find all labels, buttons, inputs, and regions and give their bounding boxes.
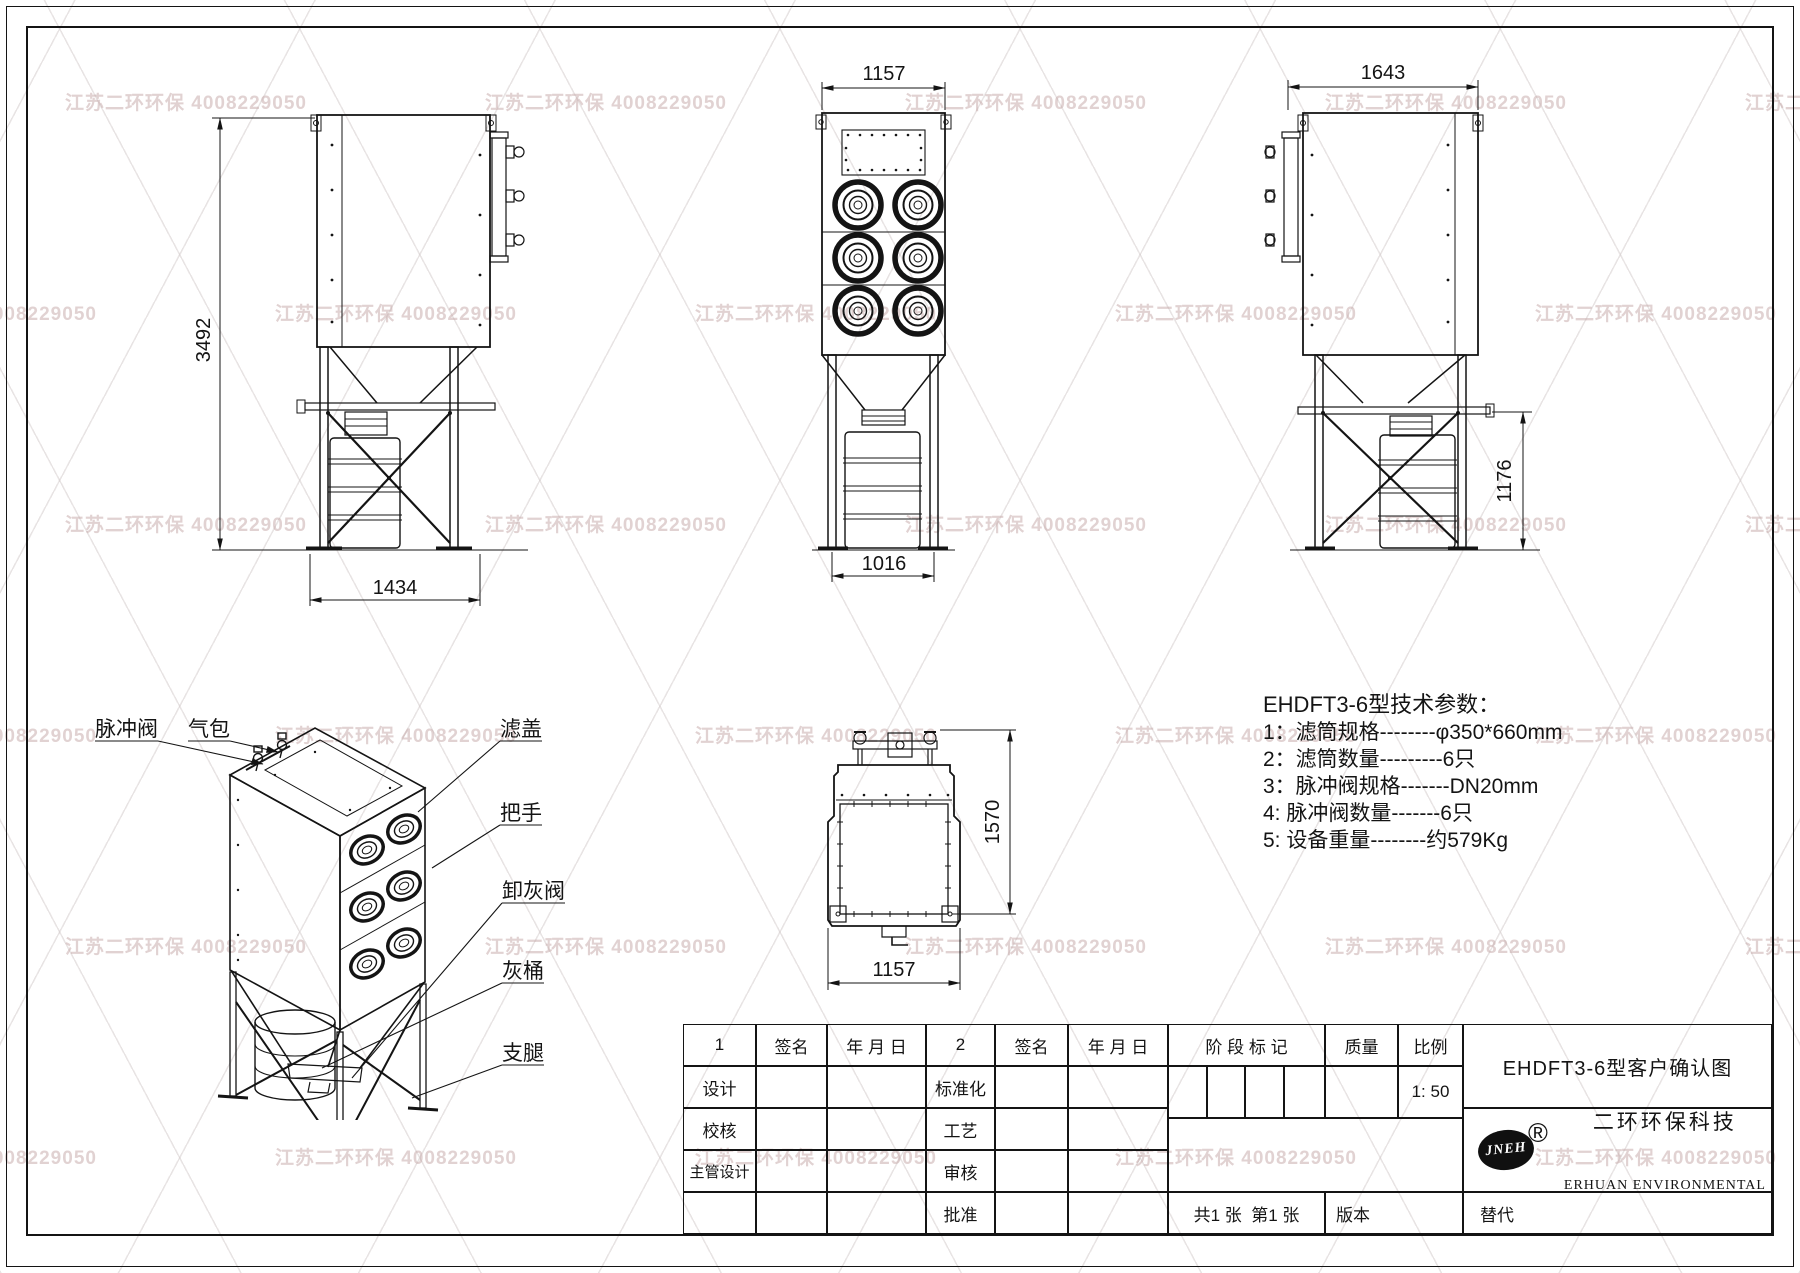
dim-right-height-lower: 1176 xyxy=(1494,459,1516,502)
filter-cartridges-icon xyxy=(835,182,941,334)
tech-params-title: EHDFT3-6型技术参数： xyxy=(1263,690,1623,719)
filter-cartridges-icon xyxy=(346,810,425,984)
tb-empty-cell xyxy=(1168,1118,1463,1192)
view-side-right: 1643 1176 xyxy=(1260,60,1560,620)
tech-params: EHDFT3-6型技术参数： 1：滤筒规格--------φ350*660mm … xyxy=(1263,690,1623,854)
tb-stage-subcell xyxy=(1284,1066,1325,1118)
tb-stage-subcell xyxy=(1168,1066,1207,1118)
tb-empty-cell xyxy=(827,1192,926,1234)
view-top: 1570 1157 xyxy=(780,700,1100,1000)
tb-empty-cell xyxy=(756,1192,827,1234)
tb-row-standard: 标准化 xyxy=(926,1066,995,1108)
dim-base-width: 1434 xyxy=(373,577,418,599)
view-front: 1157 1016 xyxy=(800,60,1000,620)
tb-empty-cell xyxy=(756,1108,827,1150)
label-support-leg: 支腿 xyxy=(502,1042,544,1065)
tb-empty-cell xyxy=(1068,1066,1168,1108)
company-name-en: ERHUAN ENVIRONMENTAL xyxy=(1564,1178,1766,1192)
dim-top-width: 1157 xyxy=(872,959,915,981)
dim-top-depth: 1570 xyxy=(982,800,1004,845)
tb-sheet-info: 共1 张 第1 张 xyxy=(1168,1192,1325,1234)
label-ash-bucket: 灰桶 xyxy=(502,960,544,983)
tech-param-item: 1：滤筒规格--------φ350*660mm xyxy=(1263,719,1623,746)
tb-empty-cell xyxy=(827,1150,926,1192)
tb-row-chief-design: 主管设计 xyxy=(683,1150,756,1192)
title-block: 1 签名 年 月 日 2 签名 年 月 日 阶 段 标 记 质量 比例 设计 标… xyxy=(683,1024,1772,1234)
tb-empty-cell xyxy=(827,1066,926,1108)
tb-scale-header: 比例 xyxy=(1398,1024,1463,1066)
tb-date-header2: 年 月 日 xyxy=(1068,1024,1168,1066)
tb-sign-header: 签名 xyxy=(756,1024,827,1066)
dim-front-width-bottom: 1016 xyxy=(862,553,907,575)
tb-empty-cell xyxy=(756,1066,827,1108)
label-handle: 把手 xyxy=(500,802,542,825)
tb-row-process: 工艺 xyxy=(926,1108,995,1150)
tb-row-approve: 批准 xyxy=(926,1192,995,1234)
tb-row-design: 设计 xyxy=(683,1066,756,1108)
tb-empty-cell xyxy=(995,1066,1068,1108)
tb-col-group2: 2 xyxy=(926,1024,995,1066)
tb-empty-cell xyxy=(1068,1150,1168,1192)
drawing-sheet: 江苏二环环保 4008229050江苏二环环保 4008229050江苏二环环保… xyxy=(0,0,1800,1273)
label-ash-valve: 卸灰阀 xyxy=(502,880,565,903)
drawing-title: EHDFT3-6型客户确认图 xyxy=(1463,1024,1772,1108)
tb-row-review: 审核 xyxy=(926,1150,995,1192)
tb-col-group1: 1 xyxy=(683,1024,756,1066)
tb-empty-cell xyxy=(995,1108,1068,1150)
tech-param-item: 2：滤筒数量---------6只 xyxy=(1263,746,1623,773)
tb-date-header: 年 月 日 xyxy=(827,1024,926,1066)
pulse-valve-assembly-icon xyxy=(490,132,524,262)
tb-row-check: 校核 xyxy=(683,1108,756,1150)
tb-empty-cell xyxy=(1068,1192,1168,1234)
tb-weight-value xyxy=(1325,1066,1398,1118)
tb-replace: 替代 xyxy=(1463,1192,1772,1234)
tb-empty-cell xyxy=(756,1150,827,1192)
tech-param-item: 3：脉冲阀规格-------DN20mm xyxy=(1263,773,1623,800)
tb-empty-cell xyxy=(1068,1108,1168,1150)
company-name-cn: 二环环保科技 xyxy=(1564,1108,1766,1136)
air-bag-icon xyxy=(853,732,937,765)
view-isometric: 脉冲阀 气包 滤盖 把手 卸灰阀 灰桶 支腿 xyxy=(60,640,580,1120)
tb-empty-cell xyxy=(995,1150,1068,1192)
pulse-valve-assembly-icon xyxy=(1265,132,1300,262)
company-logo-icon: JNEH xyxy=(1476,1127,1536,1173)
tb-empty-cell xyxy=(827,1108,926,1150)
dim-overall-height: 3492 xyxy=(193,318,215,363)
tech-param-item: 5: 设备重量--------约579Kg xyxy=(1263,827,1623,854)
pulse-valve-icon xyxy=(246,733,290,771)
tb-stage-subcell xyxy=(1245,1066,1284,1118)
tb-stage-subcell xyxy=(1207,1066,1245,1118)
tb-scale-value: 1: 50 xyxy=(1398,1066,1463,1118)
tb-weight-header: 质量 xyxy=(1325,1024,1398,1066)
tb-stage-mark-header: 阶 段 标 记 xyxy=(1168,1024,1325,1066)
tb-empty-cell xyxy=(995,1192,1068,1234)
label-air-bag: 气包 xyxy=(188,718,230,741)
tb-sign-header2: 签名 xyxy=(995,1024,1068,1066)
dim-right-width-top: 1643 xyxy=(1361,62,1406,84)
tb-version: 版本 xyxy=(1325,1192,1463,1234)
label-filter-cover: 滤盖 xyxy=(500,718,542,741)
company-logo-cell: JNEH ® 二环环保科技 ERHUAN ENVIRONMENTAL xyxy=(1463,1108,1772,1192)
tech-param-item: 4: 脉冲阀数量-------6只 xyxy=(1263,800,1623,827)
view-side-left: 3492 1434 xyxy=(180,60,530,620)
tb-empty-cell xyxy=(683,1192,756,1234)
label-pulse-valve: 脉冲阀 xyxy=(95,718,158,741)
dim-front-width-top: 1157 xyxy=(862,63,905,85)
